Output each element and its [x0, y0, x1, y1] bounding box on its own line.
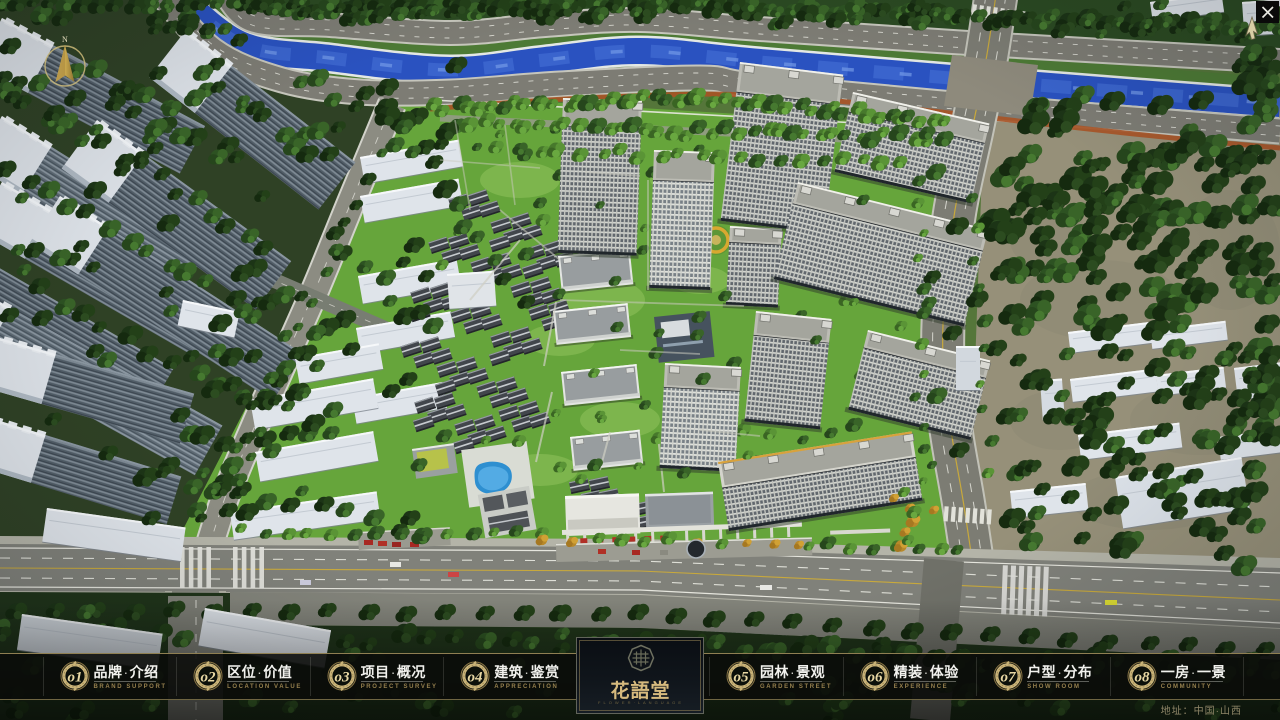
svg-text:o6: o6: [867, 670, 883, 686]
svg-text:o3: o3: [334, 670, 350, 686]
svg-text:o8: o8: [1134, 670, 1150, 686]
svg-text:o1: o1: [67, 670, 82, 686]
svg-text:o5: o5: [734, 670, 750, 686]
svg-text:N: N: [62, 35, 68, 44]
svg-text:o7: o7: [1001, 670, 1017, 686]
svg-text:o2: o2: [201, 670, 217, 686]
svg-text:o4: o4: [468, 670, 484, 686]
